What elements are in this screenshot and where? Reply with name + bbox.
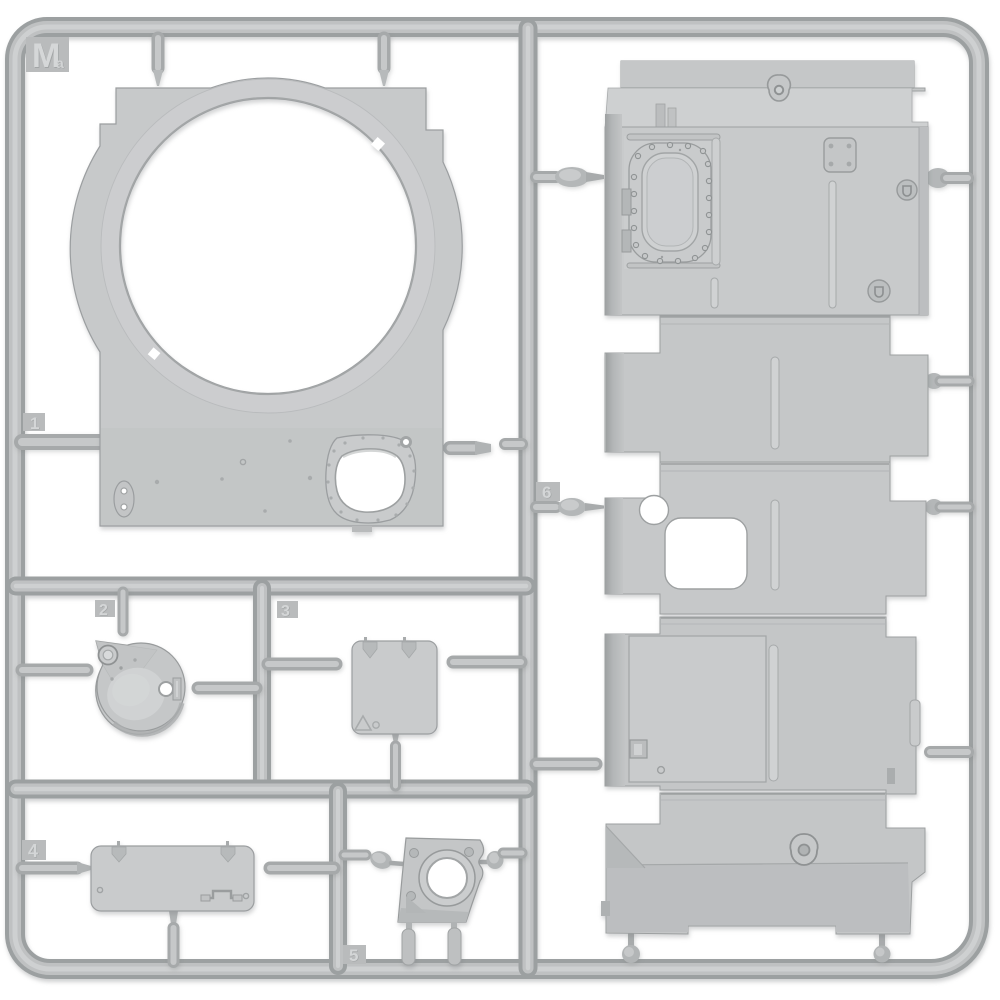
svg-text:3: 3: [281, 603, 290, 620]
svg-text:a: a: [56, 55, 64, 71]
svg-text:4: 4: [28, 841, 38, 861]
svg-text:5: 5: [349, 946, 358, 965]
svg-text:6: 6: [542, 483, 551, 502]
svg-text:1: 1: [30, 414, 39, 433]
svg-text:2: 2: [99, 602, 108, 619]
